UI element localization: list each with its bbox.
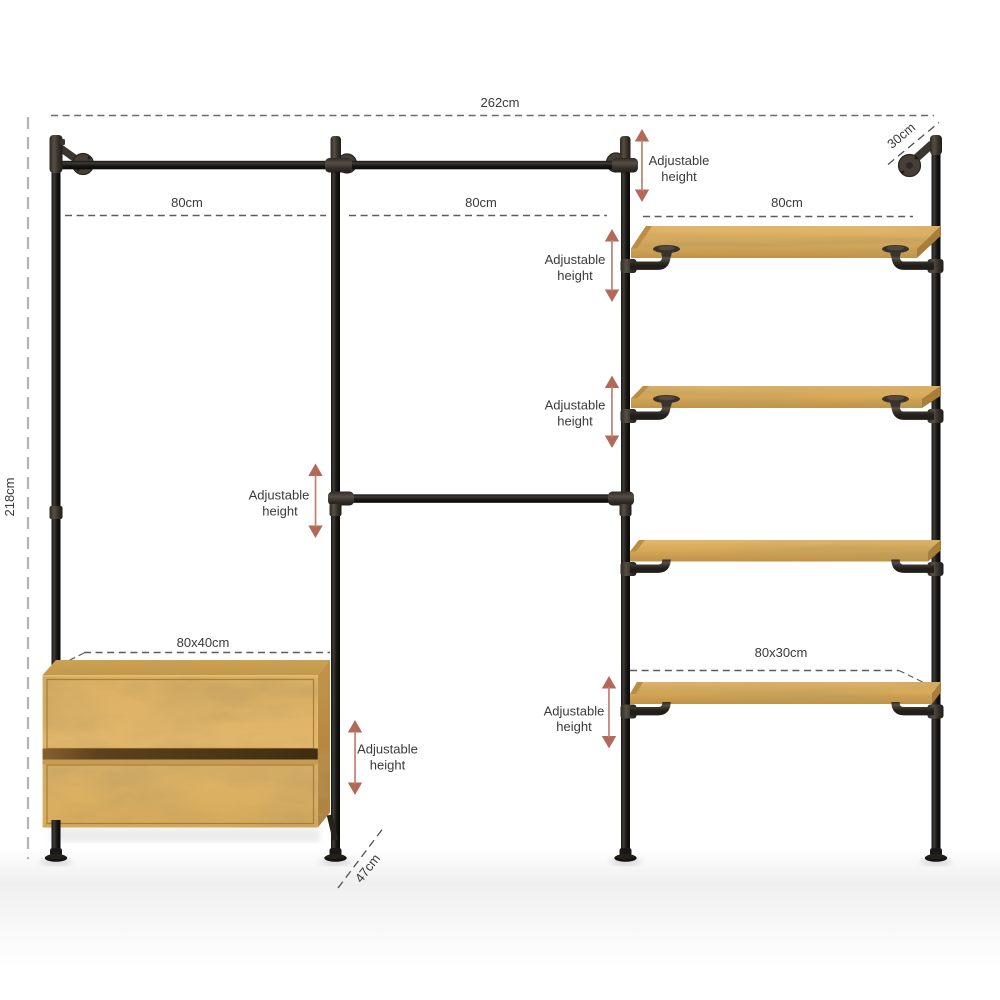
svg-text:Adjustable: Adjustable — [544, 704, 605, 719]
svg-text:Adjustable: Adjustable — [249, 488, 310, 503]
svg-text:80cm: 80cm — [171, 195, 203, 210]
svg-text:height: height — [556, 719, 592, 734]
svg-text:80x30cm: 80x30cm — [755, 645, 808, 660]
svg-text:Adjustable: Adjustable — [545, 252, 606, 267]
svg-text:80x40cm: 80x40cm — [177, 635, 230, 650]
svg-text:Adjustable: Adjustable — [649, 153, 710, 168]
svg-text:80cm: 80cm — [771, 195, 803, 210]
svg-text:Adjustable: Adjustable — [545, 398, 606, 413]
svg-text:height: height — [370, 758, 406, 773]
svg-text:80cm: 80cm — [465, 195, 497, 210]
svg-text:Adjustable: Adjustable — [357, 742, 418, 757]
svg-text:262cm: 262cm — [480, 95, 519, 110]
svg-text:height: height — [661, 169, 697, 184]
svg-text:height: height — [262, 504, 298, 519]
svg-text:height: height — [557, 268, 593, 283]
svg-text:218cm: 218cm — [2, 477, 17, 516]
svg-text:height: height — [557, 414, 593, 429]
